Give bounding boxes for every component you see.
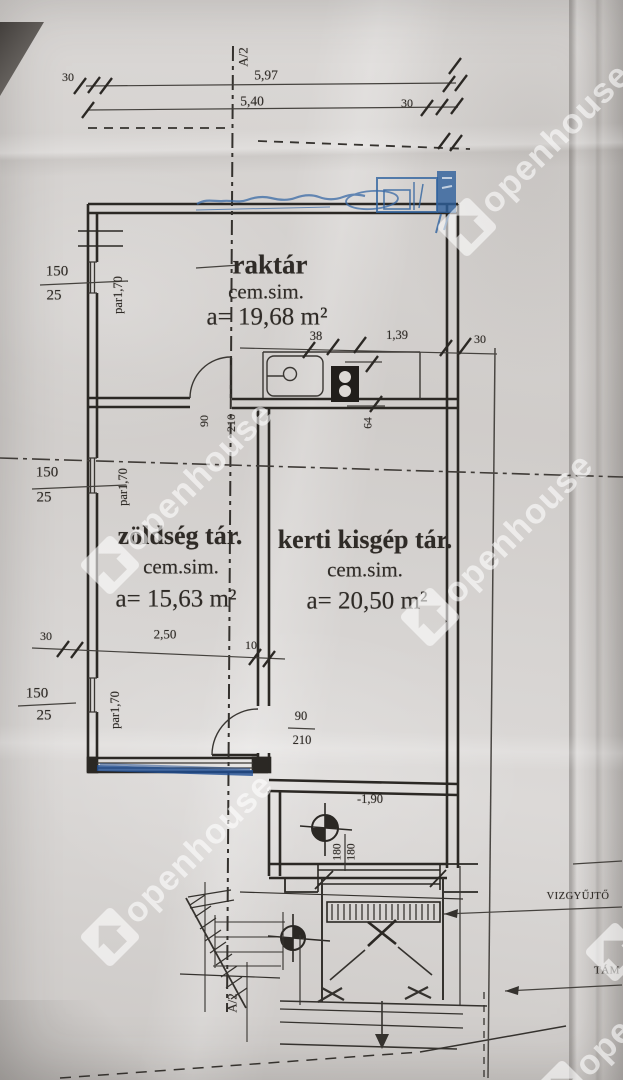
room-name-kerti: kerti kisgép tár. (278, 527, 453, 553)
room-area-raktar: a= 19,68 m² (207, 305, 328, 330)
door-height-label: 210 (225, 414, 237, 432)
room-finish-zoldseg: cem.sim. (143, 557, 219, 578)
dim-stove-64: 64 (363, 417, 375, 429)
door-width-label: 90 (295, 710, 308, 723)
room-finish-kerti: cem.sim. (327, 560, 403, 581)
handwritten-annotation (196, 189, 399, 211)
room-area-kerti: a= 20,50 m² (307, 589, 428, 614)
dim-inner-width: 5,40 (240, 94, 264, 108)
pit-dim-180: 180 (346, 843, 358, 860)
room-area-zoldseg: a= 15,63 m² (116, 587, 237, 612)
window-size-label: 150 (46, 265, 69, 280)
pit-level-label: -1,90 (357, 793, 383, 806)
room-finish-raktar: cem.sim. (228, 282, 304, 303)
pit-dim-180: 180 (332, 843, 344, 860)
window-note-label: par1,70 (117, 468, 130, 506)
dim-lower-10: 10 (245, 639, 257, 651)
section-marker-top: A/2 (237, 47, 250, 67)
eaves-dashed-outline (88, 128, 470, 149)
drain-grate-symbol (327, 902, 440, 922)
callout-leaders (375, 348, 622, 1078)
room-name-raktar: raktár (233, 252, 308, 279)
dim-lower-30: 30 (40, 630, 52, 642)
window-parapet-label: 25 (37, 709, 52, 724)
window-parapet-label: 25 (37, 491, 52, 506)
dim-offset-left: 30 (62, 71, 74, 83)
blue-stamp (377, 171, 456, 233)
pit-cross-mark (368, 920, 396, 946)
stove-symbol (331, 366, 359, 402)
room-name-zoldseg: zöldség tár. (118, 523, 243, 549)
window-size-label: 150 (36, 466, 59, 481)
door-height-label: 210 (293, 734, 312, 747)
blue-window-mark (97, 764, 253, 773)
door-width-label: 90 (198, 415, 210, 427)
dim-counter-139: 1,39 (386, 329, 408, 342)
section-marker-bottom: A/2 (226, 993, 239, 1013)
window-note-label: par1,70 (109, 691, 122, 729)
dim-total-width: 5,97 (254, 68, 278, 82)
window-size-label: 150 (26, 687, 49, 702)
scanned-floorplan-photo: A/2 30 5,97 5,40 30 raktár cem.sim. a= 1… (0, 0, 623, 1080)
dim-counter-30: 30 (474, 333, 486, 345)
dim-offset-right: 30 (401, 97, 413, 109)
window-note-label: par1,70 (112, 276, 125, 314)
window-parapet-label: 25 (47, 289, 62, 304)
dimension-ticks (57, 58, 471, 667)
dim-lower-250: 2,50 (154, 628, 177, 641)
callout-water-collector: VIZGYŰJTŐ (547, 892, 610, 903)
dim-counter-38: 38 (310, 330, 323, 343)
floor-drain-symbol (268, 914, 330, 962)
floor-drain-symbol (300, 803, 352, 856)
callout-retaining-wall: TÁM (594, 966, 620, 977)
